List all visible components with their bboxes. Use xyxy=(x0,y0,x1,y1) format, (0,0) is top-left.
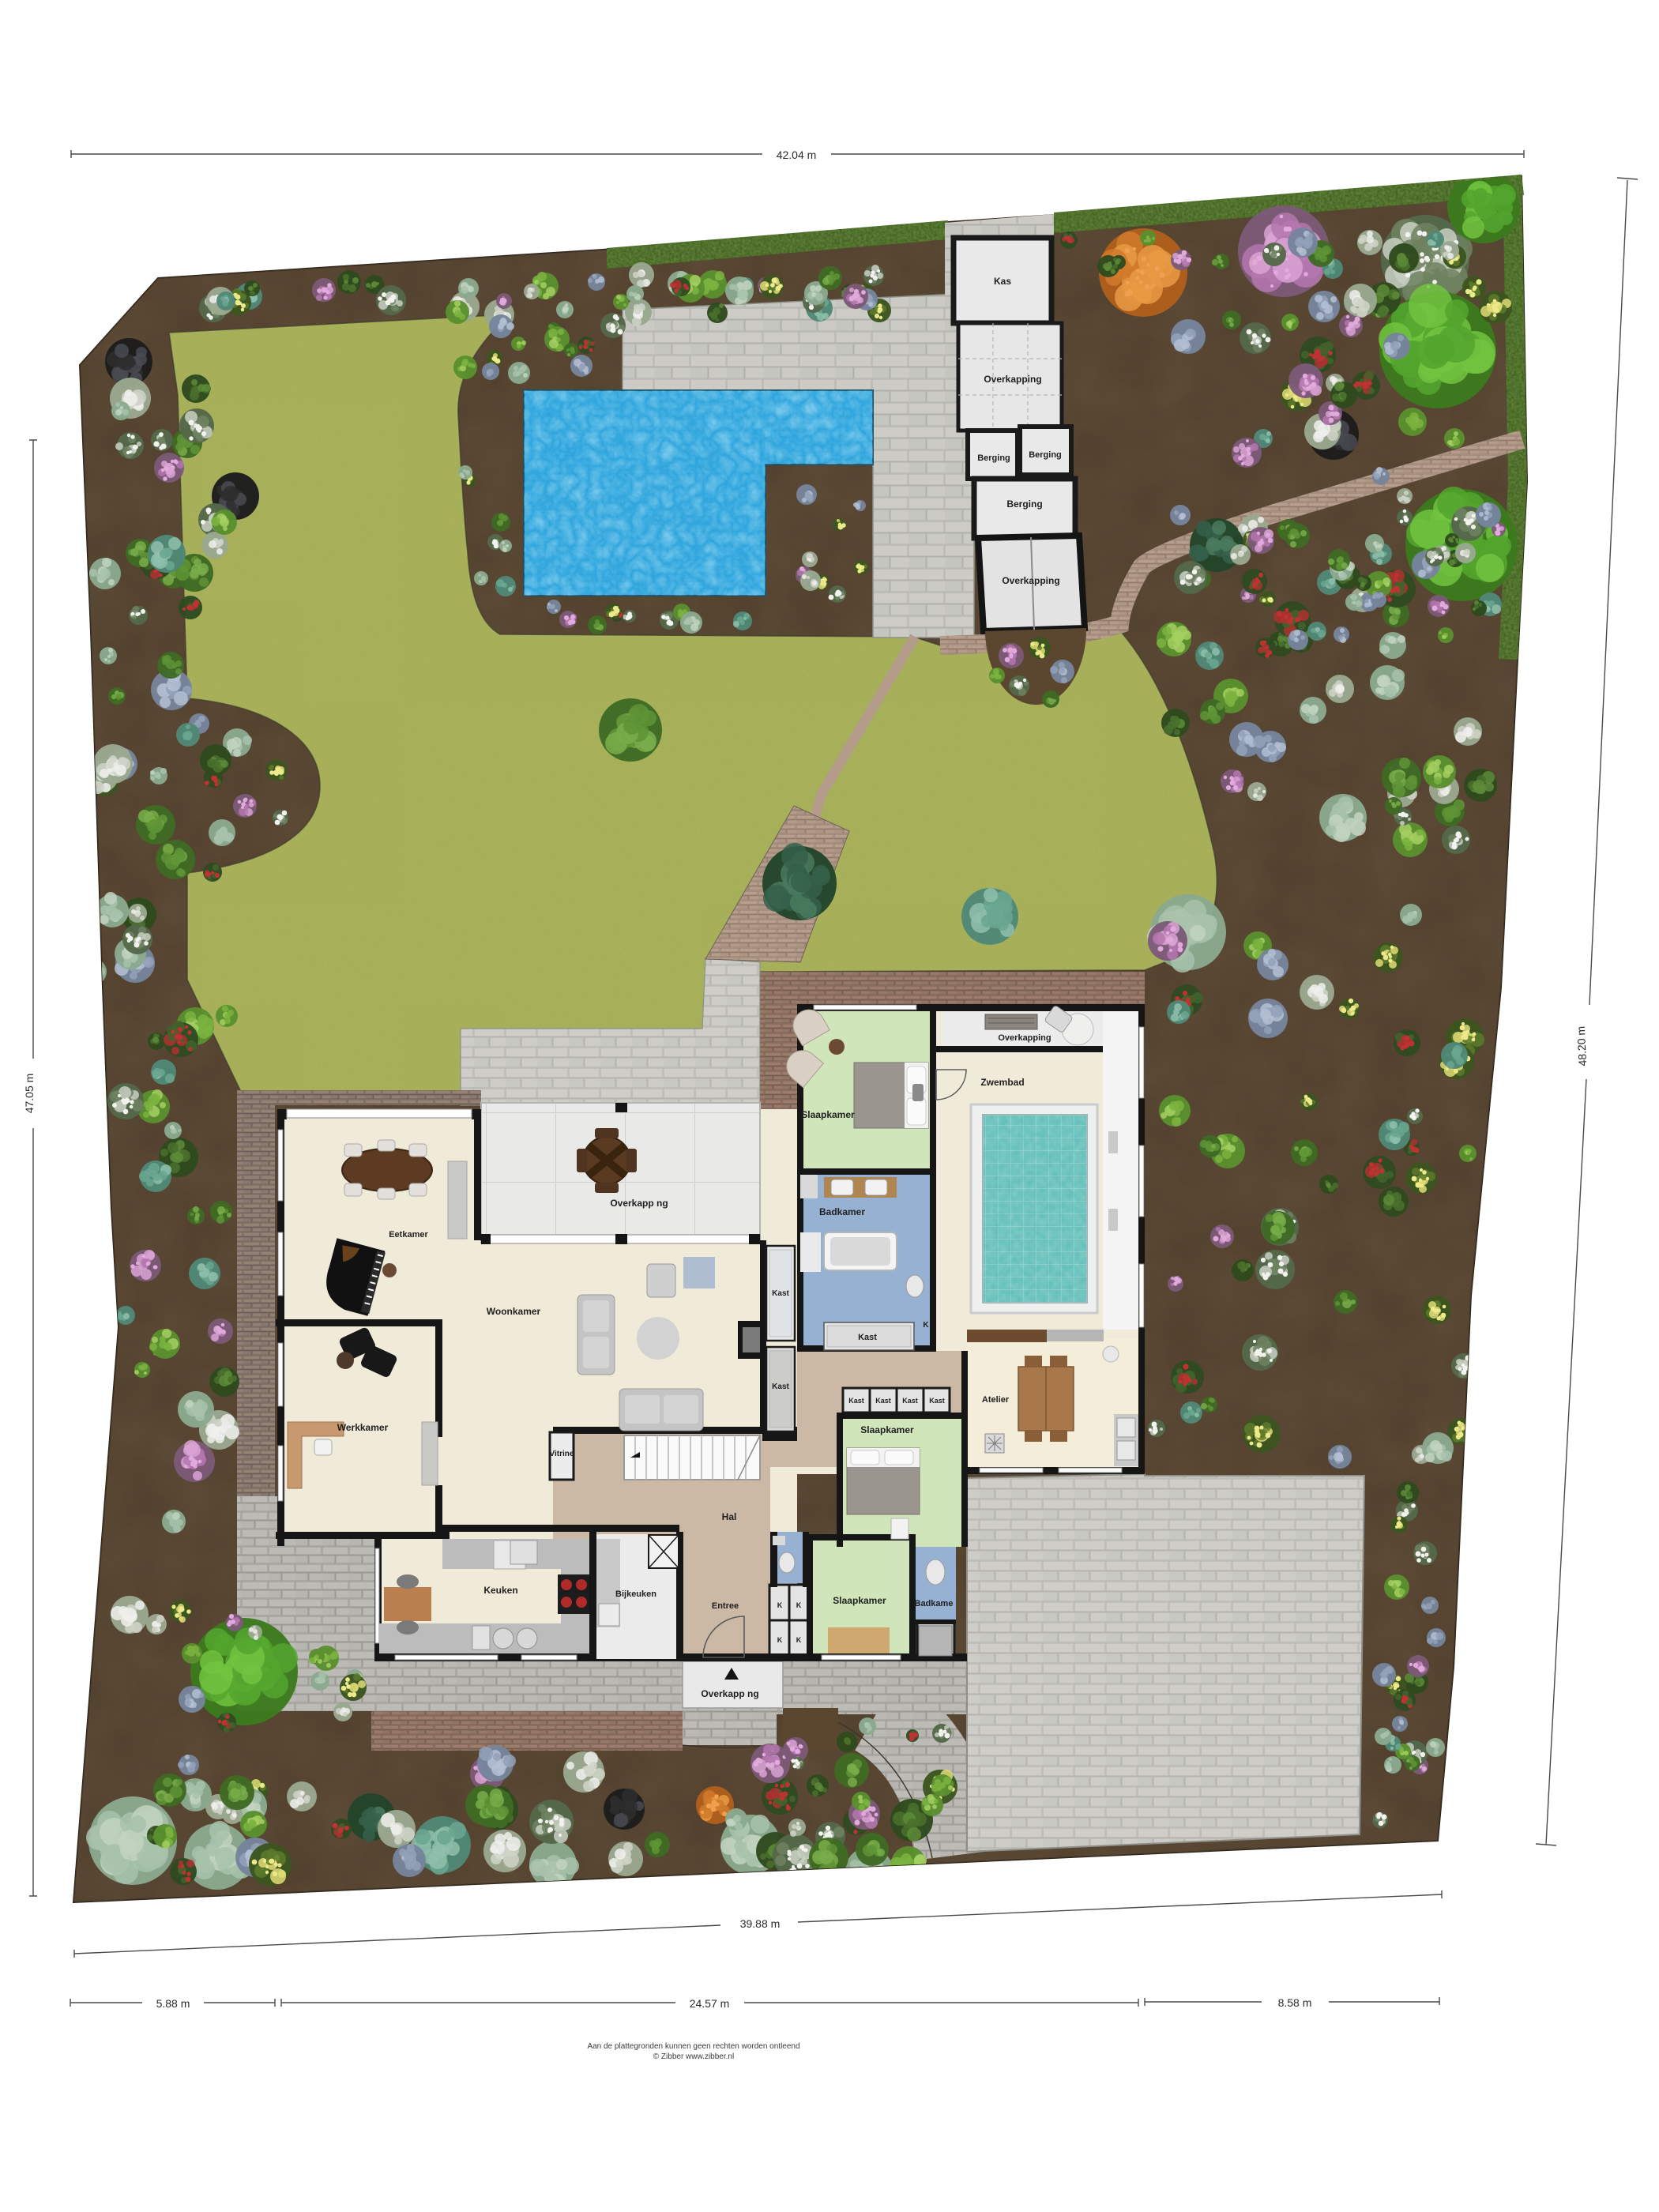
svg-text:Overkapp ng: Overkapp ng xyxy=(701,1688,758,1699)
svg-text:Kas: Kas xyxy=(994,276,1011,287)
svg-text:47.05 m: 47.05 m xyxy=(23,1074,36,1114)
svg-text:Kast: Kast xyxy=(772,1382,789,1391)
svg-text:Atelier: Atelier xyxy=(982,1395,1010,1405)
svg-text:K: K xyxy=(923,1321,929,1330)
svg-text:Badkame: Badkame xyxy=(915,1599,954,1608)
svg-text:Slaapkamer: Slaapkamer xyxy=(860,1424,914,1435)
svg-text:24.57 m: 24.57 m xyxy=(690,1997,730,2010)
svg-text:Kast: Kast xyxy=(902,1397,918,1405)
svg-text:Slaapkamer: Slaapkamer xyxy=(801,1109,855,1120)
svg-text:Berging: Berging xyxy=(977,453,1010,463)
svg-text:K: K xyxy=(777,1636,783,1644)
svg-text:K: K xyxy=(796,1636,802,1644)
svg-text:Berging: Berging xyxy=(1029,450,1062,460)
svg-text:Kast: Kast xyxy=(875,1397,891,1405)
svg-text:Bijkeuken: Bijkeuken xyxy=(615,1589,656,1599)
svg-text:Entree: Entree xyxy=(712,1601,739,1611)
svg-text:Overkapping: Overkapping xyxy=(984,374,1041,385)
svg-text:Werkkamer: Werkkamer xyxy=(337,1422,389,1433)
svg-text:Overkapping: Overkapping xyxy=(998,1033,1051,1043)
svg-text:Kast: Kast xyxy=(929,1397,945,1405)
svg-text:Kast: Kast xyxy=(848,1397,864,1405)
svg-text:Eetkamer: Eetkamer xyxy=(389,1230,428,1240)
svg-text:Kast: Kast xyxy=(772,1289,789,1298)
svg-text:39.88 m: 39.88 m xyxy=(740,1917,781,1930)
svg-text:Slaapkamer: Slaapkamer xyxy=(833,1595,886,1606)
svg-text:Kast: Kast xyxy=(858,1333,877,1342)
svg-text:8.58 m: 8.58 m xyxy=(1278,1996,1312,2009)
svg-text:Vitrine: Vitrine xyxy=(550,1450,574,1458)
svg-text:48.20 m: 48.20 m xyxy=(1574,1026,1589,1066)
svg-text:© Zibber www.zibber.nl: © Zibber www.zibber.nl xyxy=(653,2052,734,2061)
svg-text:Overkapping: Overkapping xyxy=(1002,575,1059,586)
svg-text:Hal: Hal xyxy=(722,1511,737,1522)
svg-text:Berging: Berging xyxy=(1006,498,1042,510)
svg-text:Keuken: Keuken xyxy=(483,1585,517,1596)
svg-text:42.04 m: 42.04 m xyxy=(777,149,817,161)
svg-text:Aan de plattegronden kunnen ge: Aan de plattegronden kunnen geen rechten… xyxy=(587,2042,799,2051)
svg-text:5.88 m: 5.88 m xyxy=(156,1997,190,2010)
svg-text:Woonkamer: Woonkamer xyxy=(487,1306,541,1317)
svg-text:Zwembad: Zwembad xyxy=(980,1077,1024,1088)
svg-text:K: K xyxy=(796,1601,802,1609)
svg-text:Overkapp ng: Overkapp ng xyxy=(610,1198,668,1209)
svg-text:Badkamer: Badkamer xyxy=(819,1206,865,1217)
svg-text:K: K xyxy=(777,1601,783,1609)
